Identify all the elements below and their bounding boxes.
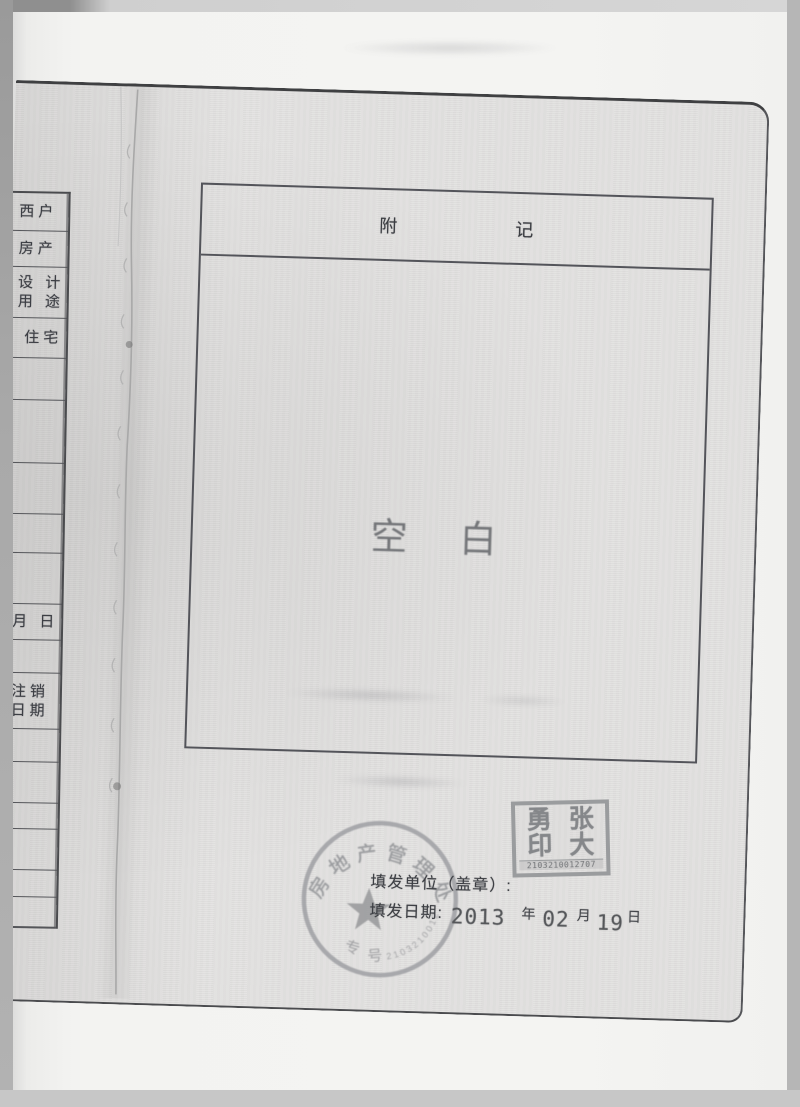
scan-edge-top (0, 0, 800, 12)
row-label: 设 计 (5, 273, 67, 293)
annex-header: 附 记 (201, 185, 712, 271)
issue-block: 填发单位（盖章）: 填发日期: 2013 年 02 月 19 日 (369, 870, 643, 933)
table-row: 房产 (5, 231, 68, 268)
annex-title-char-left: 附 (379, 211, 398, 238)
row-label: 西户 (6, 202, 68, 222)
scan-edge-bottom (0, 1090, 800, 1107)
issue-date-year-unit: 年 (521, 900, 537, 926)
scan-edge-left (0, 0, 13, 1107)
annex-box: 附 记 空 白 (184, 183, 714, 764)
seal-char-bottom-right: 大 (569, 832, 595, 859)
blank-stamp-char-2: 白 (459, 508, 498, 563)
seal-characters: 勇 张 印 大 (518, 806, 603, 860)
issue-date-year: 2013 (450, 903, 505, 931)
table-row: 西户 (6, 193, 69, 232)
row-label: 住宅 (4, 328, 66, 348)
seal-char-top-right: 张 (568, 806, 594, 833)
seal-char-top-left: 勇 (527, 807, 553, 834)
blank-stamp-char-1: 空 (370, 506, 409, 561)
issue-date-month: 02 (542, 906, 570, 933)
bleedthrough-smudge (333, 773, 468, 791)
table-row: 住宅 (4, 318, 67, 359)
stamp-bottom-char-2: 号 (367, 947, 383, 965)
binding-shadow (97, 86, 162, 999)
bleedthrough-smudge (478, 693, 568, 709)
scan-smudge (340, 40, 560, 56)
scan-edge-right (787, 0, 800, 1107)
issue-date-month-unit: 月 (576, 902, 592, 928)
seal-serial: 2103210012707 (519, 859, 603, 871)
seal-char-bottom-left: 印 (527, 833, 553, 860)
scanned-document: 西户 房产 设 计 用 途 住宅 月 日 注销 日期 (0, 0, 800, 1107)
row-label: 房产 (6, 239, 68, 259)
issue-date-label: 填发日期: (369, 899, 443, 927)
table-row: 设 计 用 途 (4, 267, 67, 319)
row-label: 用 途 (5, 292, 67, 312)
issue-date-day: 19 (596, 910, 624, 937)
stamp-bottom-char-1: 专 (343, 938, 362, 958)
name-seal: 勇 张 印 大 2103210012707 (511, 799, 611, 877)
booklet-page: 西户 房产 设 计 用 途 住宅 月 日 注销 日期 (0, 80, 770, 1023)
annex-title-char-right: 记 (515, 215, 534, 242)
bleedthrough-smudge (283, 685, 458, 705)
blank-stamp: 空 白 (370, 506, 498, 564)
issue-date-day-unit: 日 (627, 904, 643, 930)
